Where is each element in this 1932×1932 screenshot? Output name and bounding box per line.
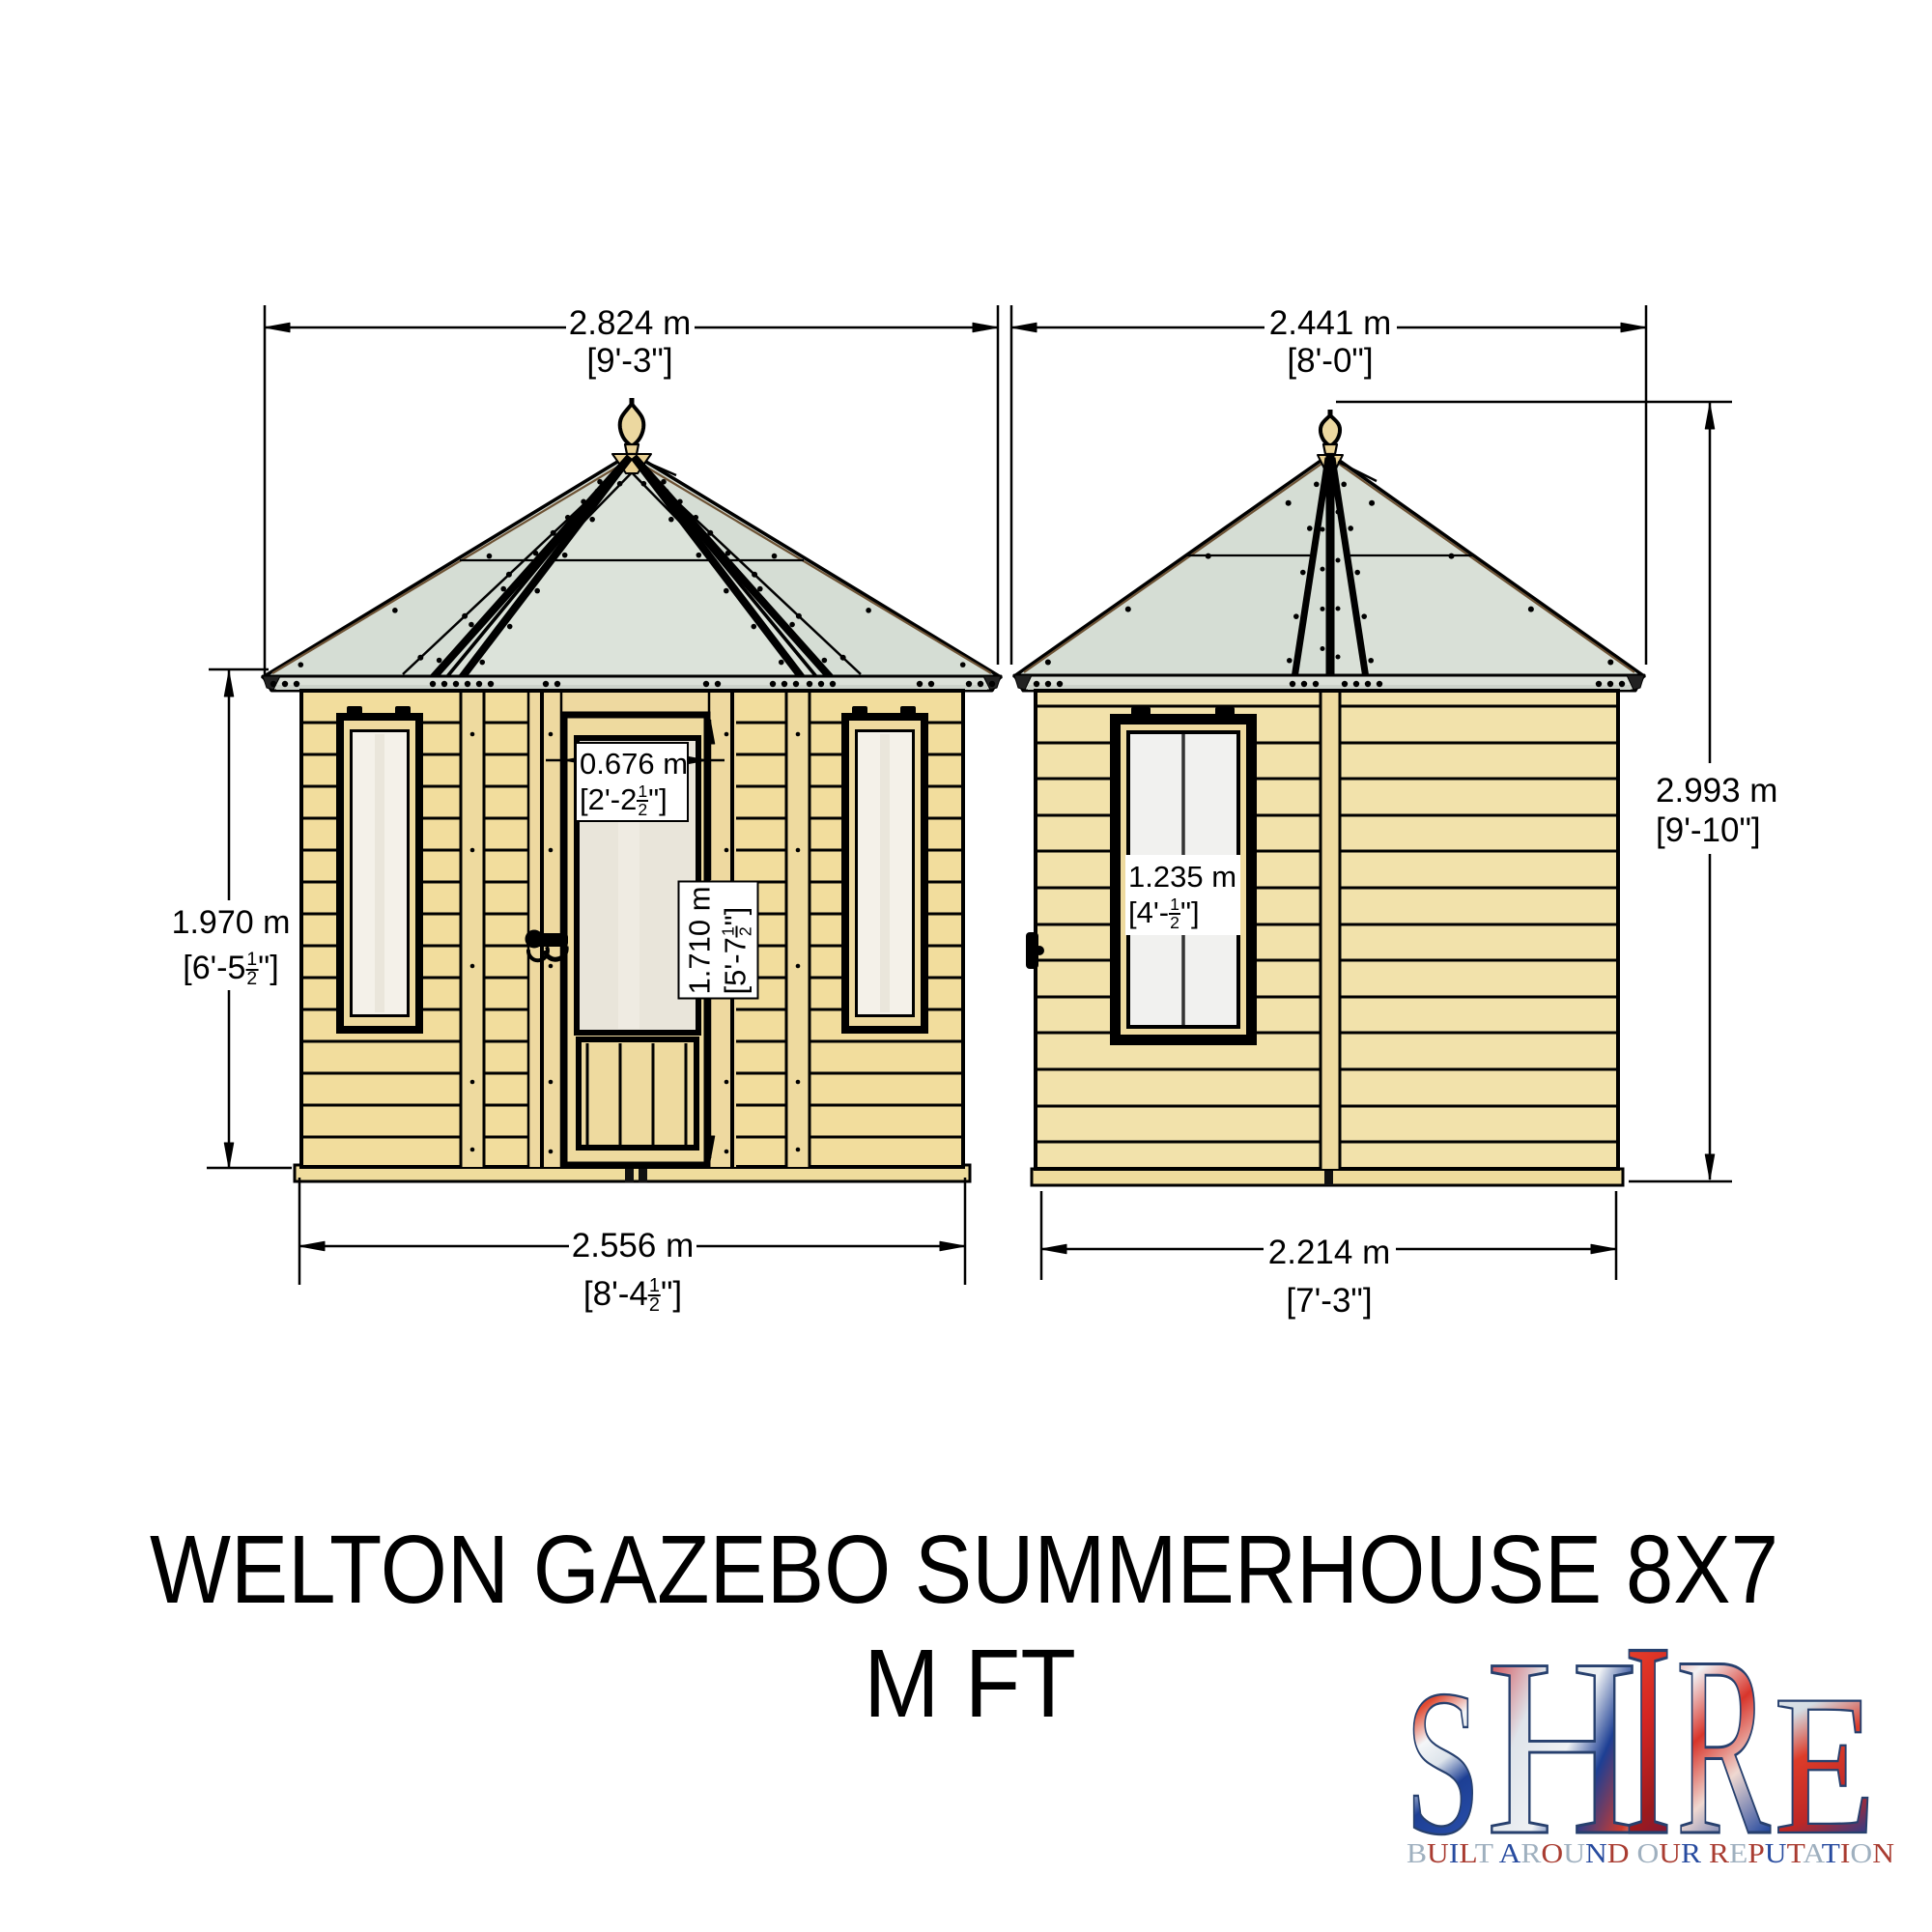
svg-text:BUILT AROUND OUR REPUTATION: BUILT AROUND OUR REPUTATION	[1406, 1839, 1894, 1869]
